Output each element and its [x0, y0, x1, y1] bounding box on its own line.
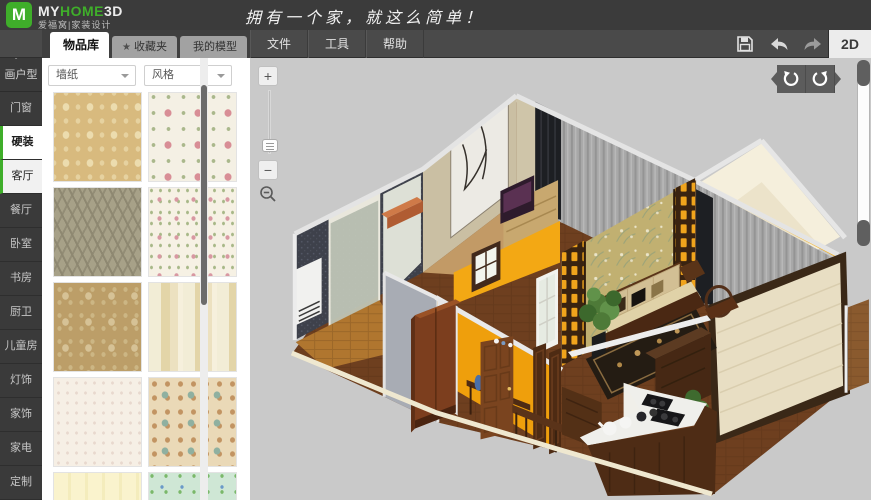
rotate-ccw-icon — [782, 70, 800, 88]
zoom-slider-handle[interactable] — [262, 139, 278, 152]
category-sidebar: 画户型 门窗硬装客厅餐厅卧室书房厨卫儿童房灯饰家饰家电定制 — [0, 30, 42, 500]
rotate-notch-right-icon — [835, 72, 841, 86]
sidebar-nav: 门窗硬装客厅餐厅卧室书房厨卫儿童房灯饰家饰家电定制 — [0, 92, 42, 500]
panel-scrollbar-thumb[interactable] — [201, 85, 207, 305]
library-filters: 墙纸风格 — [42, 58, 250, 92]
rotate-left-button[interactable] — [777, 65, 806, 93]
save-icon — [736, 35, 754, 53]
3d-room-scene[interactable] — [250, 58, 871, 500]
scrollbar-cap-top[interactable] — [857, 60, 870, 86]
entry-door[interactable] — [481, 336, 514, 439]
panel-scrollbar[interactable] — [200, 58, 208, 500]
rotate-controls — [771, 65, 841, 93]
scrollbar-cap-bottom[interactable] — [857, 220, 870, 246]
menu-item[interactable]: 工具 — [308, 30, 366, 58]
zoom-slider[interactable] — [268, 90, 271, 154]
texture-swatch[interactable] — [148, 377, 237, 467]
brand-name: MYHOME3D — [38, 3, 123, 19]
redo-button[interactable] — [801, 33, 825, 55]
save-button[interactable] — [733, 33, 757, 55]
sidebar-item[interactable]: 灯饰 — [0, 364, 42, 398]
undo-button[interactable] — [767, 33, 791, 55]
texture-swatch[interactable] — [148, 282, 237, 372]
menu-item[interactable]: 文件 — [250, 30, 308, 58]
sidebar-item[interactable]: 家电 — [0, 432, 42, 466]
zoom-out-button[interactable]: − — [258, 160, 278, 180]
brand-home: HOME — [60, 3, 104, 19]
sidebar-item[interactable]: 书房 — [0, 262, 42, 296]
magnifier-minus-icon — [258, 184, 278, 204]
redo-icon — [802, 35, 824, 53]
lattice-panel[interactable] — [562, 241, 584, 366]
library-tab[interactable]: 物品库 — [50, 32, 109, 58]
canvas-scrollbar-thumb[interactable] — [857, 74, 870, 234]
view-2d-toggle[interactable]: 2D — [828, 30, 871, 58]
kettle — [603, 422, 617, 436]
rotate-right-button[interactable] — [806, 65, 835, 93]
library-tab-label: 收藏夹 — [134, 41, 167, 53]
texture-library-panel: 墙纸风格 — [42, 58, 250, 500]
toolbar-icons — [733, 30, 825, 58]
sidebar-item[interactable]: 家饰 — [0, 398, 42, 432]
menu-item[interactable]: 帮助 — [366, 30, 424, 58]
undo-icon — [768, 35, 790, 53]
brand-my: MY — [38, 3, 60, 19]
filter-dropdown[interactable]: 墙纸 — [48, 65, 136, 86]
sidebar-item[interactable]: 卧室 — [0, 228, 42, 262]
star-icon: ★ — [122, 42, 131, 53]
chevron-down-icon — [217, 74, 225, 78]
texture-swatch[interactable] — [53, 282, 142, 372]
menu-items: 文件工具帮助 — [250, 30, 424, 58]
library-tab[interactable]: 我的模型 — [180, 36, 247, 58]
library-tab-label: 我的模型 — [193, 41, 237, 53]
app-header: M MYHOME3D 爱福窝|家装设计 拥有一个家，就这么简单！ — [0, 0, 871, 30]
sidebar-item-label: 画户型 — [5, 69, 38, 81]
sidebar-item[interactable]: 厨卫 — [0, 296, 42, 330]
filter-dropdown[interactable]: 风格 — [144, 65, 232, 86]
sidebar-item[interactable]: 定制 — [0, 466, 42, 500]
library-tab[interactable]: ★收藏夹 — [112, 36, 177, 58]
texture-swatch[interactable] — [53, 472, 142, 500]
zoom-in-button[interactable]: + — [258, 66, 278, 86]
sidebar-item[interactable]: 餐厅 — [0, 194, 42, 228]
chevron-down-icon — [121, 74, 129, 78]
texture-swatch[interactable] — [148, 187, 237, 277]
texture-swatch[interactable] — [53, 92, 142, 182]
texture-swatch[interactable] — [53, 377, 142, 467]
texture-grid — [42, 92, 250, 500]
zoom-fit-button[interactable] — [258, 184, 278, 204]
texture-swatch[interactable] — [148, 472, 237, 500]
sidebar-item[interactable]: 儿童房 — [0, 330, 42, 364]
brand-logo-icon[interactable]: M — [6, 2, 32, 28]
texture-swatch[interactable] — [53, 187, 142, 277]
zoom-controls: + − — [258, 66, 280, 204]
design-canvas[interactable]: + − — [250, 58, 871, 500]
door-knob — [508, 387, 512, 391]
filter-value: 墙纸 — [56, 69, 78, 81]
texture-swatch[interactable] — [148, 92, 237, 182]
filter-value: 风格 — [152, 69, 174, 81]
brand-subtitle: 爱福窝|家装设计 — [38, 18, 111, 31]
kettle — [620, 417, 632, 429]
sidebar-item[interactable]: 硬装 — [0, 126, 42, 160]
sidebar-item[interactable]: 客厅 — [0, 160, 42, 194]
header-slogan: 拥有一个家，就这么简单！ — [205, 4, 525, 28]
library-tab-label: 物品库 — [63, 38, 99, 52]
myhome3d-app: M MYHOME3D 爱福窝|家装设计 拥有一个家，就这么简单！ 文件工具帮助 … — [0, 0, 871, 500]
library-tabstrip: 物品库★收藏夹我的模型 — [42, 30, 250, 58]
canvas-scrollbar[interactable] — [857, 60, 870, 246]
brand-3d: 3D — [104, 3, 123, 19]
french-window[interactable] — [536, 269, 558, 354]
rotate-cw-icon — [811, 70, 829, 88]
sidebar-item[interactable]: 门窗 — [0, 92, 42, 126]
